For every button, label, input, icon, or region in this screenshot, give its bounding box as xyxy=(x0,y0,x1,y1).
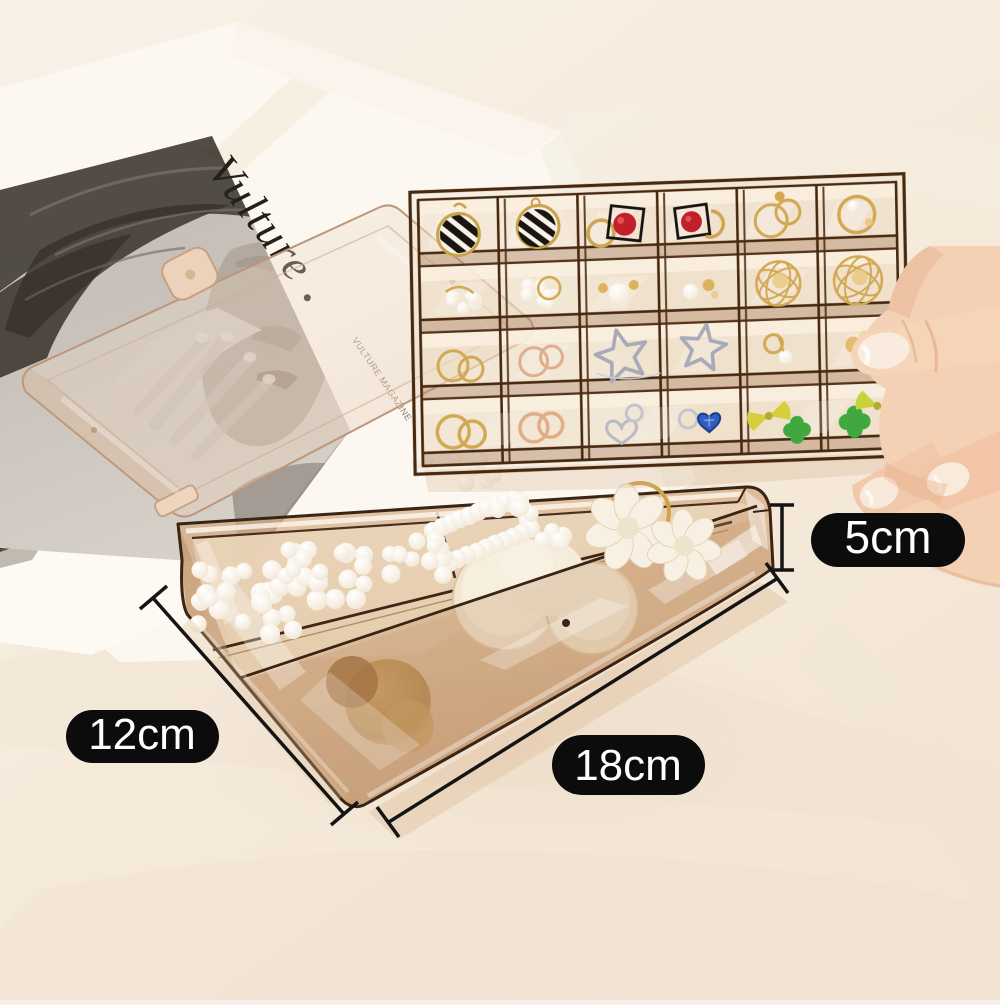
svg-text:5cm: 5cm xyxy=(845,511,932,563)
svg-text:12cm: 12cm xyxy=(88,710,196,759)
svg-text:18cm: 18cm xyxy=(574,741,682,790)
